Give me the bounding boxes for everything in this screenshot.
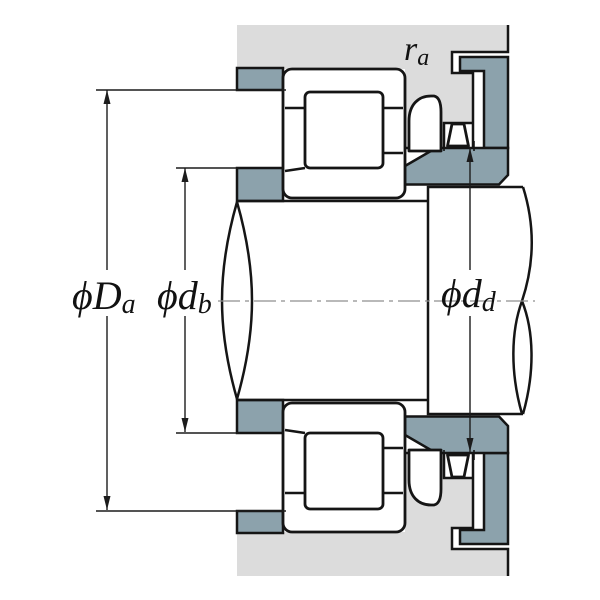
dimension-dd: ϕdd — [441, 148, 497, 452]
diagram-canvas: ϕDa ϕdb ϕdd ra — [0, 0, 600, 600]
arrowhead-up — [104, 90, 111, 104]
bearing-mounting-diagram: ϕDa ϕdb ϕdd ra — [0, 0, 600, 600]
bottom-half-section — [96, 300, 523, 576]
dimension-db: ϕdb — [157, 168, 212, 432]
arrowhead-down — [182, 418, 189, 432]
arrowhead-down — [104, 496, 111, 510]
arrowhead-up — [182, 168, 189, 182]
dimension-Da: ϕDa — [72, 90, 136, 510]
top-half-section — [96, 25, 523, 301]
label-Da: ϕDa — [72, 273, 136, 320]
label-dd: ϕdd — [441, 271, 497, 318]
label-db: ϕdb — [157, 273, 212, 320]
